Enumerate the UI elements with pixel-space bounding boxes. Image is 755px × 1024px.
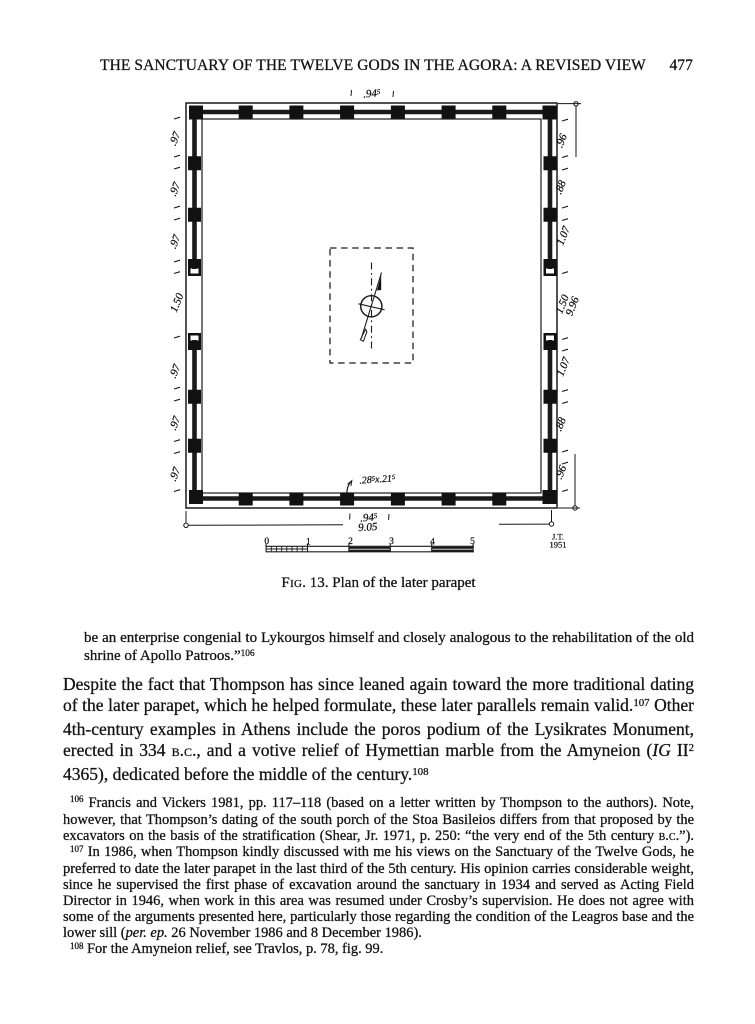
- svg-text:.88: .88: [553, 415, 569, 433]
- svg-text:4: 4: [430, 538, 435, 548]
- svg-text:5: 5: [470, 537, 475, 547]
- svg-text:.96: .96: [553, 463, 569, 481]
- svg-text:.96: .96: [554, 132, 570, 150]
- svg-text:.97: .97: [167, 465, 183, 483]
- svg-text:.97: .97: [167, 362, 183, 380]
- svg-text:2: 2: [348, 537, 353, 547]
- svg-text:.285x.215: .285x.215: [359, 473, 396, 487]
- svg-text:1951: 1951: [550, 540, 567, 550]
- svg-text:1.50: 1.50: [168, 291, 187, 314]
- svg-text:.945: .945: [363, 87, 382, 100]
- svg-text:.88: .88: [553, 178, 569, 196]
- svg-text:.97: .97: [167, 233, 183, 251]
- svg-text:9.05: 9.05: [358, 521, 379, 534]
- svg-text:1: 1: [306, 538, 311, 548]
- svg-text:.97: .97: [167, 130, 183, 148]
- svg-text:3: 3: [389, 537, 394, 547]
- svg-text:0: 0: [264, 537, 269, 547]
- svg-text:.97: .97: [167, 180, 183, 198]
- svg-text:.97: .97: [167, 414, 183, 432]
